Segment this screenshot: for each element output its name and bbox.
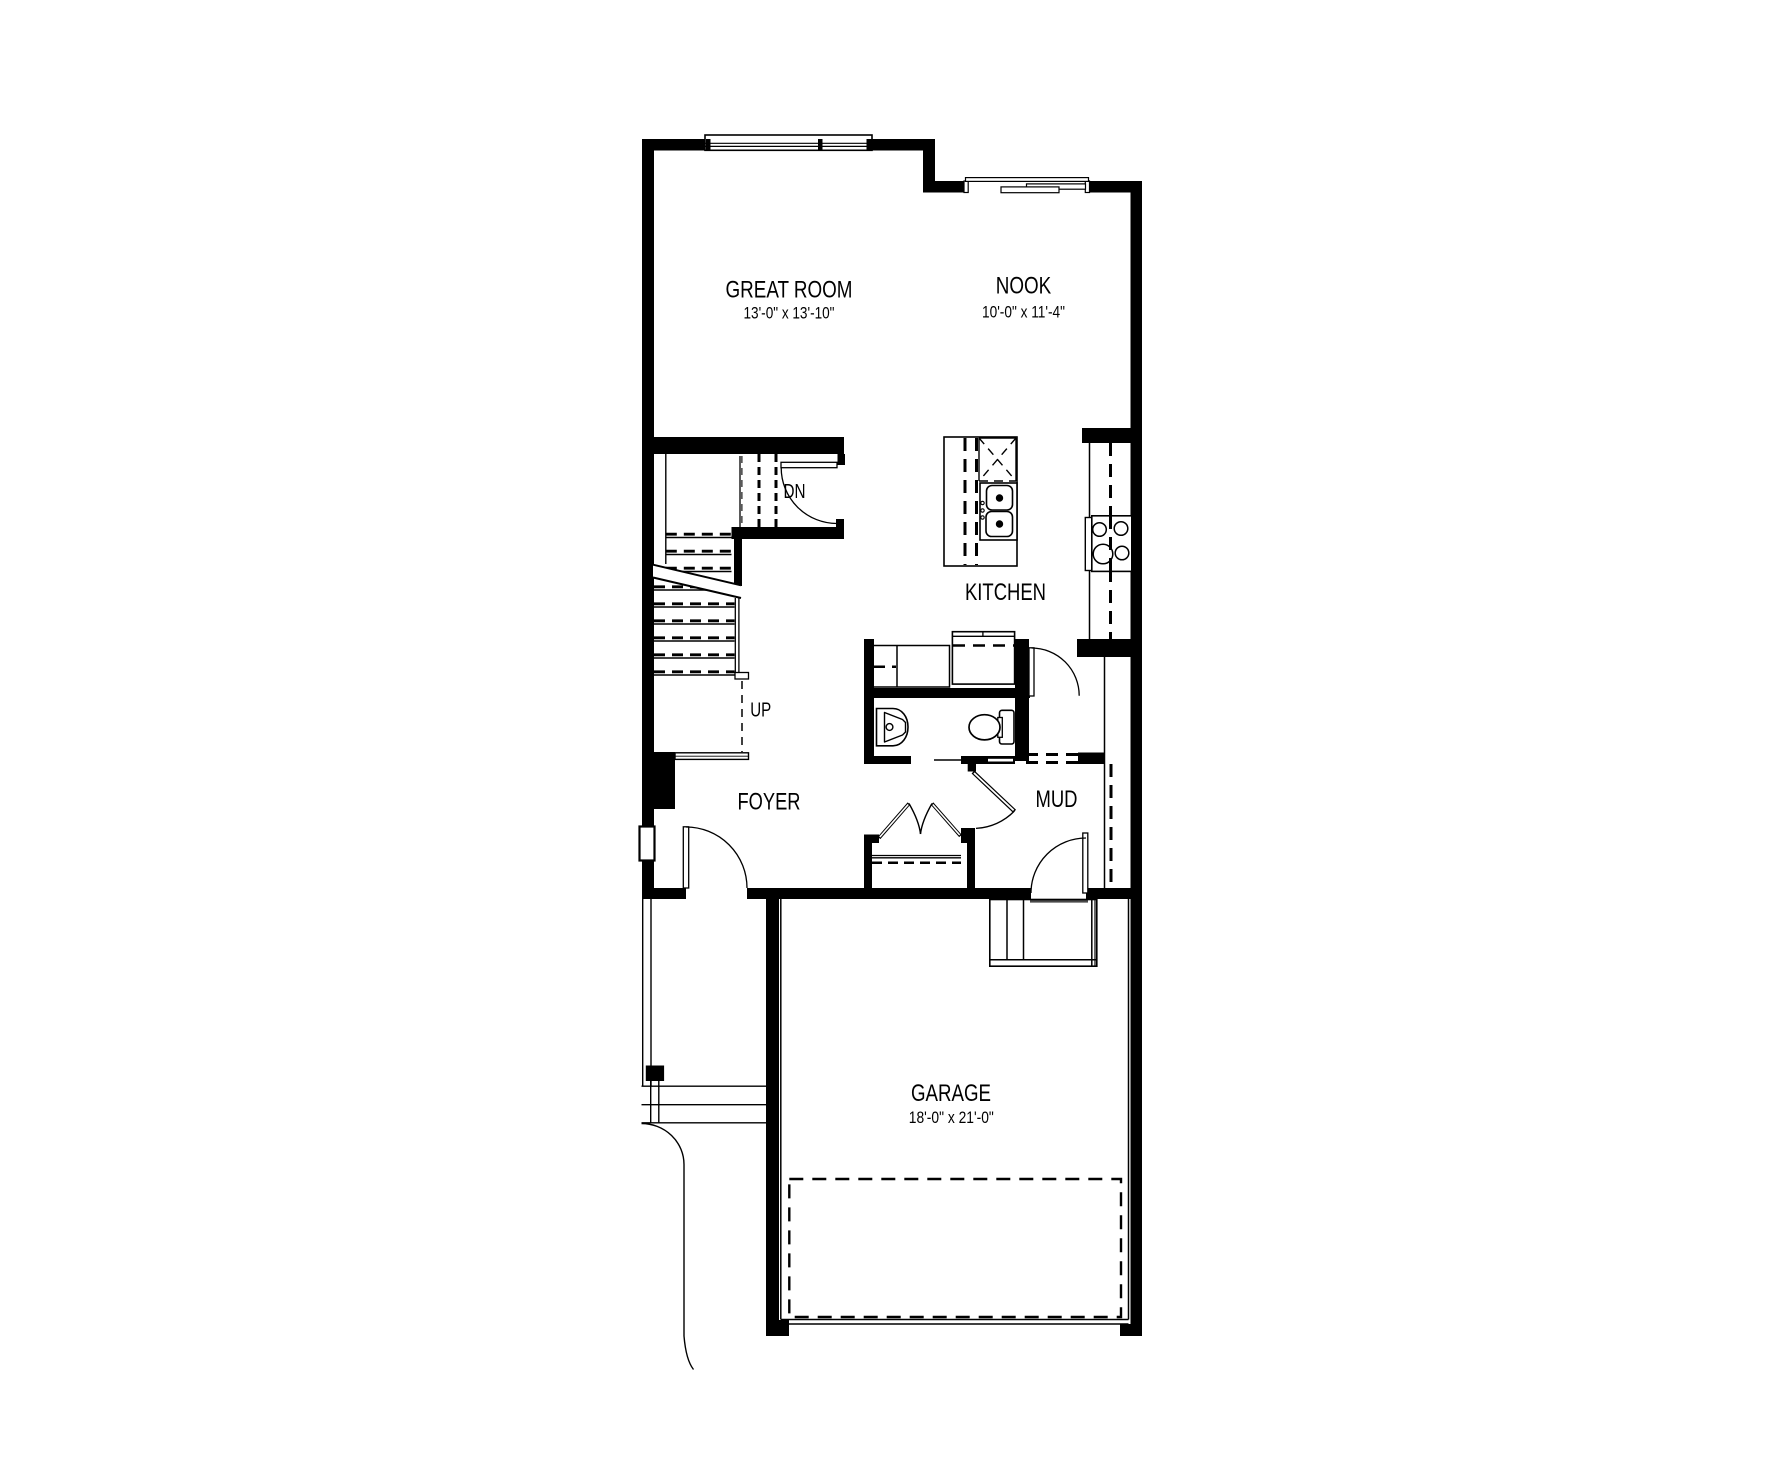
- svg-text:FOYER: FOYER: [738, 789, 801, 816]
- svg-text:GREAT ROOM: GREAT ROOM: [726, 277, 853, 304]
- svg-text:MUD: MUD: [1036, 786, 1078, 813]
- svg-text:KITCHEN: KITCHEN: [965, 579, 1046, 606]
- svg-text:DN: DN: [784, 481, 806, 503]
- svg-text:GARAGE: GARAGE: [911, 1080, 991, 1107]
- svg-text:UP: UP: [750, 700, 771, 722]
- svg-text:13'-0" x 13'-10": 13'-0" x 13'-10": [744, 305, 835, 323]
- svg-text:10'-0" x 11'-4": 10'-0" x 11'-4": [982, 304, 1065, 322]
- svg-text:NOOK: NOOK: [996, 273, 1052, 300]
- svg-text:18'-0" x 21'-0": 18'-0" x 21'-0": [909, 1109, 994, 1127]
